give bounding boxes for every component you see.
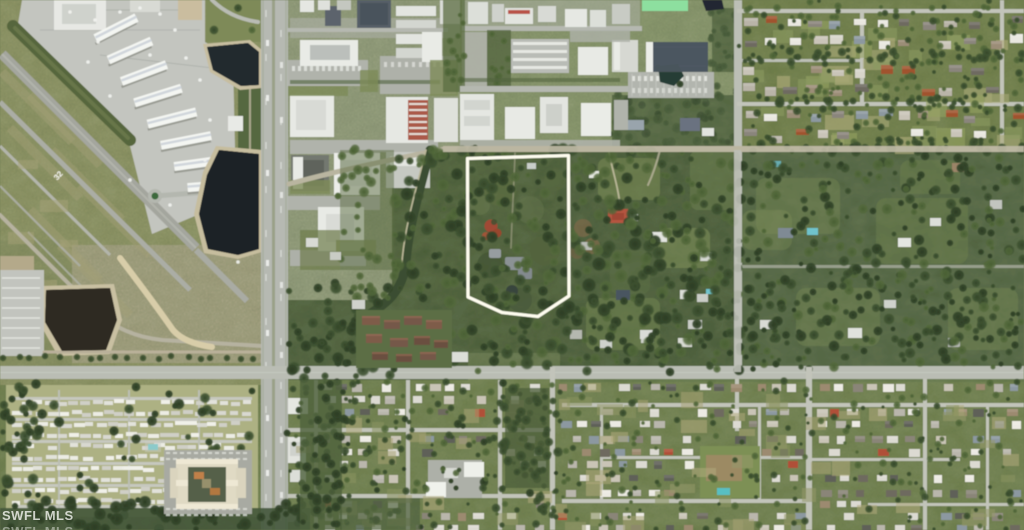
svg-text:SWFL MLS: SWFL MLS — [2, 508, 74, 523]
svg-text:SWFL MLS: SWFL MLS — [2, 524, 74, 530]
